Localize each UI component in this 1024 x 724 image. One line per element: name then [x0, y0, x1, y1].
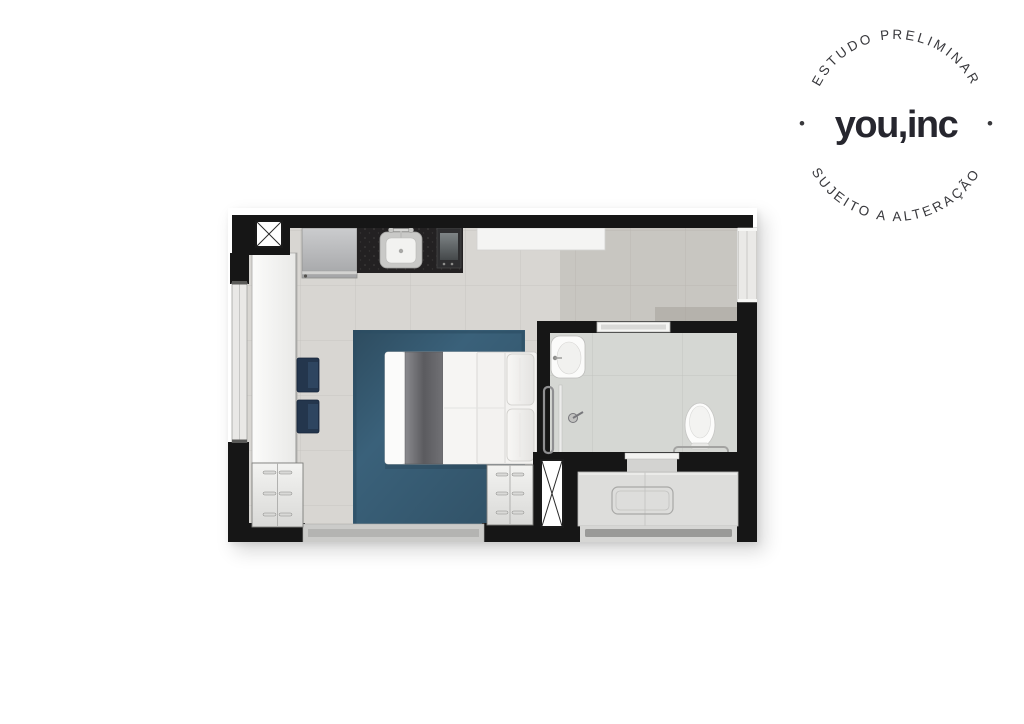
wall-left-upper	[230, 253, 249, 284]
stamp-dot-right: •	[987, 114, 993, 133]
wall-top	[232, 215, 753, 228]
chair-seat	[308, 362, 318, 388]
wall-bottom-mid	[482, 523, 534, 542]
bathroom-door-opening	[625, 453, 679, 472]
stamp-arc-top: ESTUDO PRELIMINAR	[809, 27, 983, 89]
stamp-dot-left: •	[799, 114, 805, 133]
nightstand-left	[252, 463, 303, 527]
window-left	[232, 281, 247, 443]
faucet-handle	[408, 227, 413, 232]
stamp-arc-bottom: SUJEITO A ALTERAÇÃO	[809, 165, 984, 224]
stamp-drawing: ESTUDO PRELIMINAR SUJEITO A ALTERAÇÃO • …	[776, 2, 1016, 242]
entry-counter	[578, 472, 738, 526]
floorplan-drawing	[228, 208, 757, 542]
wardrobe	[252, 253, 297, 463]
wall-top-shade	[655, 307, 737, 321]
cooktop	[437, 228, 461, 268]
window-bottom-sill	[303, 524, 484, 542]
shower-glass	[559, 385, 562, 455]
bathroom-sink	[551, 336, 585, 378]
page: ESTUDO PRELIMINAR SUJEITO A ALTERAÇÃO • …	[0, 0, 1024, 724]
brand-stamp: ESTUDO PRELIMINAR SUJEITO A ALTERAÇÃO • …	[776, 2, 1016, 242]
wall-shelf	[477, 228, 605, 250]
brand-logo: you,inc	[835, 104, 959, 146]
door-threshold	[625, 453, 679, 459]
faucet-handle	[388, 227, 393, 232]
double-bed	[385, 352, 537, 469]
sink-drain	[399, 249, 403, 253]
entry-door-bar	[580, 526, 737, 542]
bed-runner	[405, 352, 443, 464]
shaft-top-left	[256, 221, 282, 247]
kitchen-sink	[380, 227, 422, 268]
floorplan	[228, 208, 757, 542]
nightstand-right	[487, 465, 533, 525]
bathroom-window	[597, 322, 670, 332]
refrigerator-knob	[304, 274, 307, 277]
refrigerator	[302, 228, 357, 278]
refrigerator-handle	[302, 271, 357, 275]
chair-seat	[308, 404, 318, 429]
window-right	[738, 228, 757, 302]
foot-fold	[385, 352, 405, 464]
shaft-bottom	[541, 460, 563, 527]
